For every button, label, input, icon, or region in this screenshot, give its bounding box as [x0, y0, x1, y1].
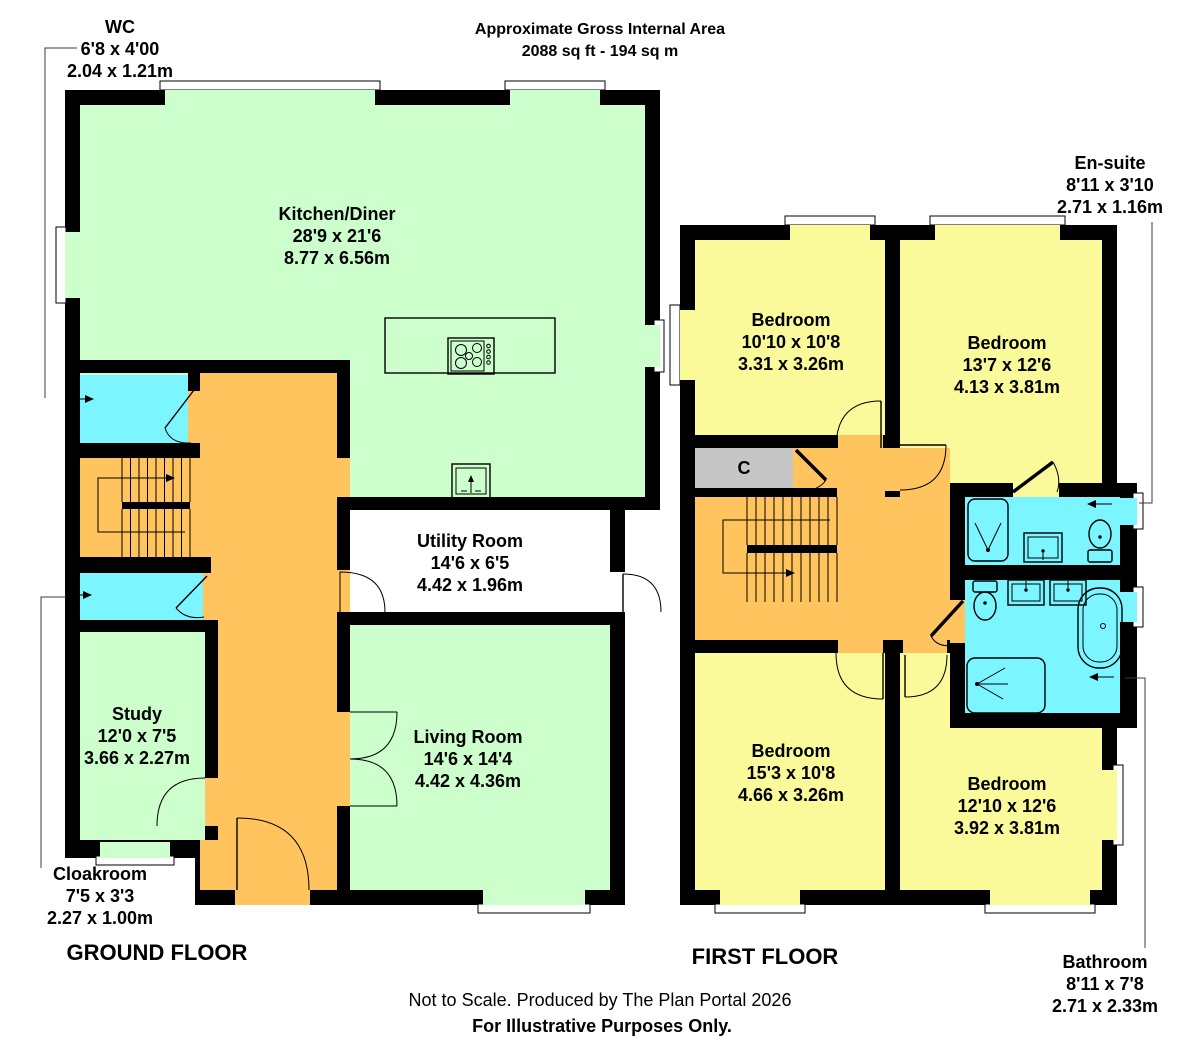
window	[985, 904, 1095, 913]
window	[715, 904, 805, 913]
room-wc	[80, 375, 188, 443]
window	[56, 227, 66, 303]
header-area: 2088 sq ft - 194 sq m	[475, 41, 725, 63]
room-label-utility: Utility Room 14'6 x 6'5 4.42 x 1.96m	[417, 530, 523, 596]
room-label-bedroom2: Bedroom 13'7 x 12'6 4.13 x 3.81m	[954, 332, 1060, 398]
window	[785, 216, 875, 225]
callout-wc: WC 6'8 x 4'00 2.04 x 1.21m	[67, 16, 173, 82]
room-cloakroom	[80, 573, 203, 620]
room-label-kitchen-diner: Kitchen/Diner 28'9 x 21'6 8.77 x 6.56m	[278, 203, 395, 269]
wc-door-gap	[188, 390, 200, 443]
callout-bathroom: Bathroom 8'11 x 7'8 2.71 x 2.33m	[1052, 951, 1158, 1017]
leader-line-ensuite	[1139, 222, 1152, 503]
room-label-bedroom1: Bedroom 10'10 x 10'8 3.31 x 3.26m	[738, 309, 844, 375]
window	[930, 216, 1065, 225]
header-title: Approximate Gross Internal Area	[475, 19, 725, 41]
window	[160, 81, 380, 90]
closet-label: C	[738, 457, 751, 479]
ground-floor-plan	[41, 48, 664, 913]
leader-line-cloakroom	[41, 597, 66, 868]
stairwell-first	[695, 497, 855, 640]
callout-cloakroom: Cloakroom 7'5 x 3'3 2.27 x 1.00m	[47, 863, 153, 929]
floorplan-canvas: Approximate Gross Internal Area 2088 sq …	[0, 0, 1200, 1042]
window	[505, 81, 605, 90]
footer-disclaimer: Not to Scale. Produced by The Plan Porta…	[409, 990, 792, 1011]
first-floor-title: FIRST FLOOR	[692, 945, 839, 969]
bedroom1-door-gap	[838, 435, 883, 448]
room-label-study: Study 12'0 x 7'5 3.66 x 2.27m	[84, 703, 190, 769]
floorplan-svg	[0, 0, 1200, 1042]
window	[478, 904, 590, 913]
page-title: Approximate Gross Internal Area 2088 sq …	[475, 19, 725, 63]
room-label-bedroom4: Bedroom 12'10 x 12'6 3.92 x 3.81m	[954, 773, 1060, 839]
window	[670, 305, 680, 385]
callout-ensuite: En-suite 8'11 x 3'10 2.71 x 1.16m	[1057, 152, 1163, 218]
room-label-living: Living Room 14'6 x 14'4 4.42 x 4.36m	[414, 726, 523, 792]
footer-illustrative: For Illustrative Purposes Only.	[472, 1016, 732, 1037]
room-label-bedroom3: Bedroom 15'3 x 10'8 4.66 x 3.26m	[738, 740, 844, 806]
ground-floor-title: GROUND FLOOR	[67, 941, 248, 965]
room-bathroom	[965, 580, 1120, 713]
